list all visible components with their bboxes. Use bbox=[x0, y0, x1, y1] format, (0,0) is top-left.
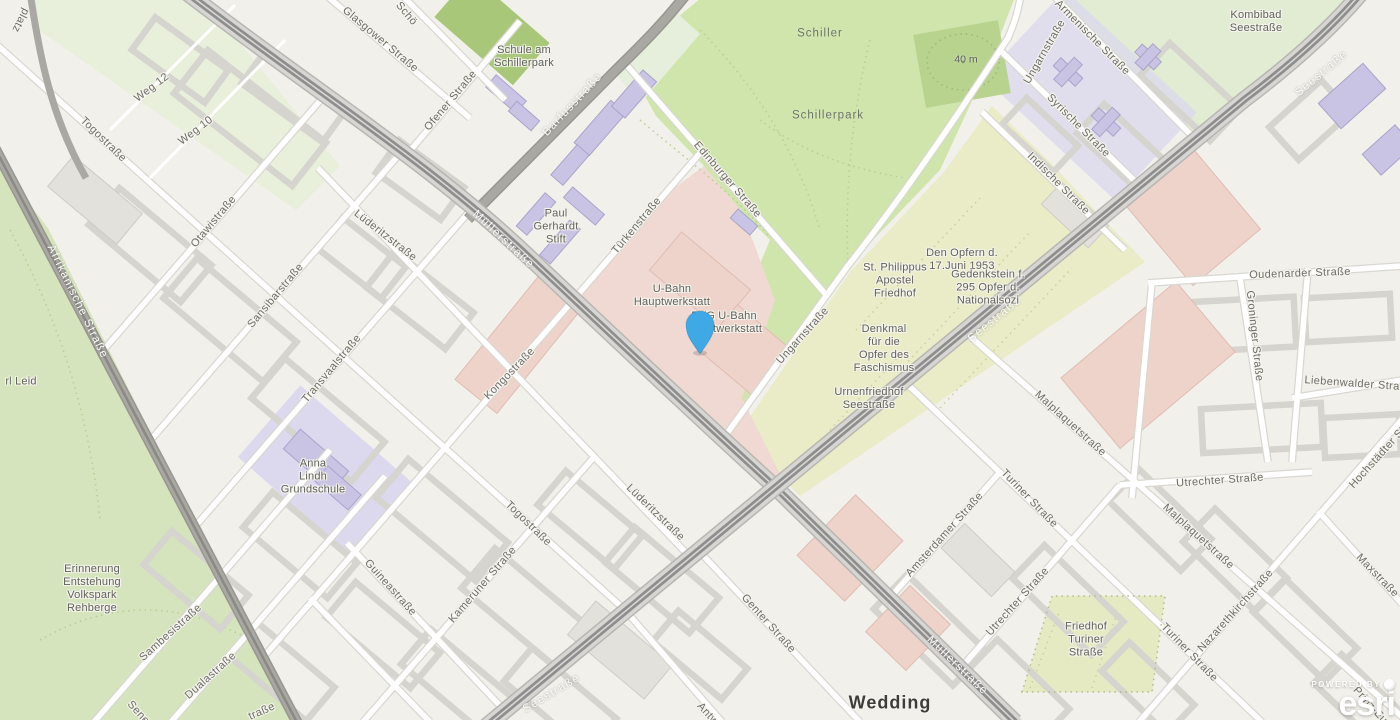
attribution: POWERED BY esri bbox=[1311, 679, 1395, 718]
map-canvas[interactable]: Weg 12Weg 10TogostraßeTogostraßeOtawistr… bbox=[0, 0, 1400, 720]
powered-by-line: POWERED BY bbox=[1311, 679, 1395, 690]
globe-icon bbox=[1384, 679, 1395, 690]
pin-icon bbox=[686, 311, 714, 354]
powered-by-text: POWERED BY bbox=[1311, 680, 1381, 689]
esri-logo[interactable]: esri bbox=[1311, 690, 1395, 718]
location-marker[interactable] bbox=[683, 308, 717, 363]
